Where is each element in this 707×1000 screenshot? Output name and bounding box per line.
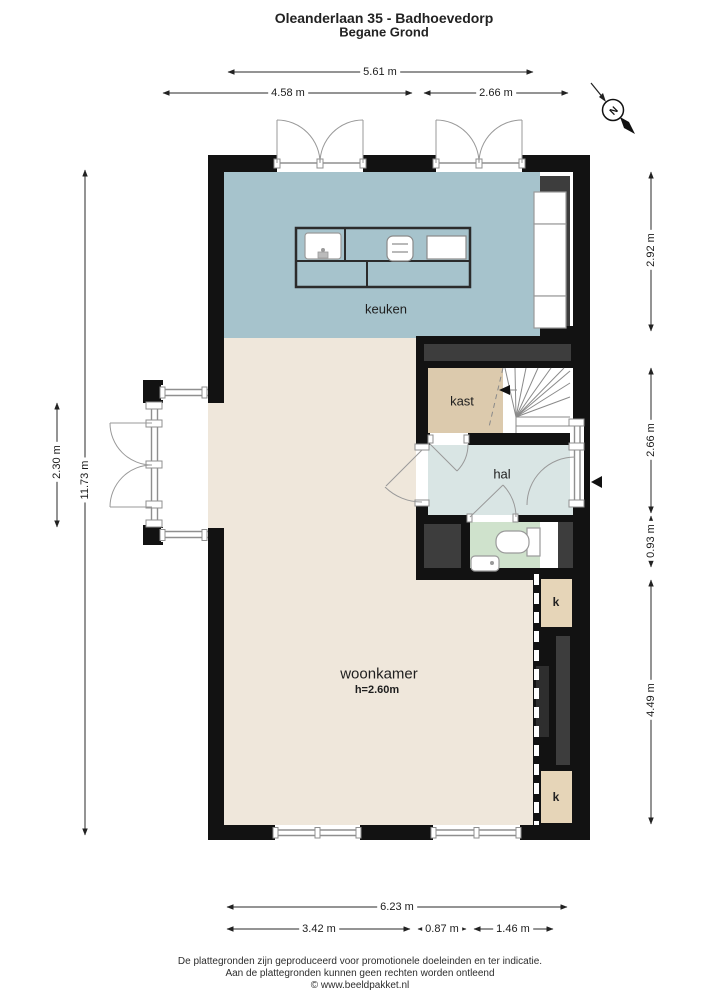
duct-block <box>424 524 461 572</box>
room-label-hal: hal <box>493 467 510 482</box>
dim-right-seg2: 2.66 m <box>645 420 657 460</box>
kast-door-opening <box>430 433 468 445</box>
woonkamer-ceiling-height: h=2.60m <box>355 684 399 696</box>
cooktop-icon <box>387 236 413 261</box>
dim-left-bay: 2.30 m <box>51 442 63 482</box>
north-arrow-icon: N <box>591 83 635 134</box>
dim-bottom-total: 6.23 m <box>377 901 417 913</box>
kast-cabinet <box>424 344 571 361</box>
dim-right-seg1: 2.92 m <box>645 230 657 270</box>
dim-top-left: 4.58 m <box>268 87 308 99</box>
floorplan-drawing: N <box>0 0 707 1000</box>
toilet-door-opening <box>470 515 516 522</box>
kitchen-appliances <box>534 192 566 328</box>
floorplan-page: N <box>0 0 707 1000</box>
dim-top-total: 5.61 m <box>360 66 400 78</box>
dim-bottom-seg1: 3.42 m <box>299 923 339 935</box>
window-bottom-left <box>273 825 361 840</box>
entrance-arrow-icon <box>591 476 602 488</box>
window-bottom-right <box>431 825 521 840</box>
closet-label-bottom: k <box>553 790 560 804</box>
footer-disclaimer-2: Aan de plattegronden kunnen geen rechten… <box>60 968 660 979</box>
room-label-keuken: keuken <box>365 302 407 317</box>
french-doors-top-left <box>274 120 366 172</box>
room-label-woonkamer: woonkamer <box>340 666 418 683</box>
dim-bottom-seg3: 1.46 m <box>493 923 533 935</box>
bay-window-floor <box>158 400 210 528</box>
closet-label-top: k <box>553 595 560 609</box>
dim-bottom-seg2: 0.87 m <box>422 923 462 935</box>
dim-top-right: 2.66 m <box>476 87 516 99</box>
dim-right-seg4: 4.49 m <box>645 680 657 720</box>
bay-french-doors <box>110 423 152 507</box>
dim-right-seg3: 0.93 m <box>645 521 657 561</box>
footer-copyright: © www.beeldpakket.nl <box>60 980 660 991</box>
page-subtitle: Begane Grond <box>339 25 429 40</box>
french-doors-top-right <box>433 120 525 172</box>
toilet-icon <box>496 528 540 556</box>
footer-disclaimer-1: De plattegronden zijn geproduceerd voor … <box>60 956 660 967</box>
counter-appliance <box>427 236 466 259</box>
dim-left-total: 11.73 m <box>79 458 91 503</box>
sink-small-icon <box>471 556 499 571</box>
room-label-kast: kast <box>450 394 474 409</box>
sink-icon <box>305 233 341 259</box>
